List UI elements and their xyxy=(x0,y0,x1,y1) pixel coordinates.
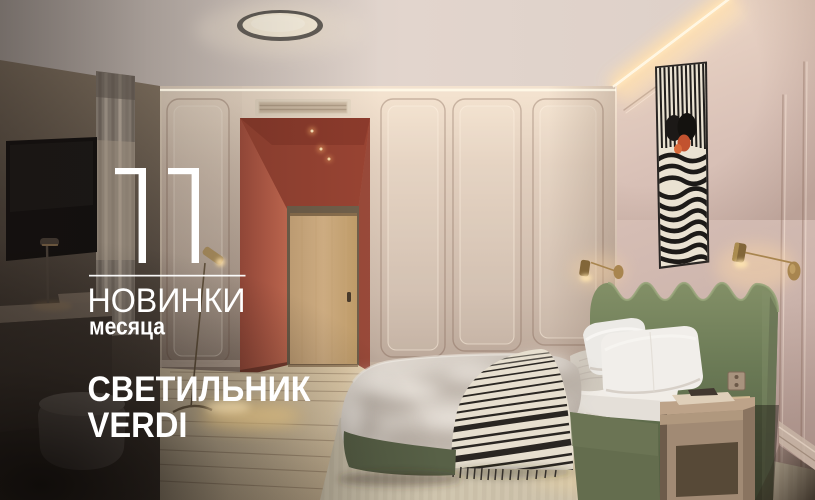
svg-text:месяца: месяца xyxy=(89,314,166,341)
svg-text:СВЕТИЛЬНИК: СВЕТИЛЬНИК xyxy=(88,370,312,409)
svg-text:VERDI: VERDI xyxy=(88,406,188,445)
